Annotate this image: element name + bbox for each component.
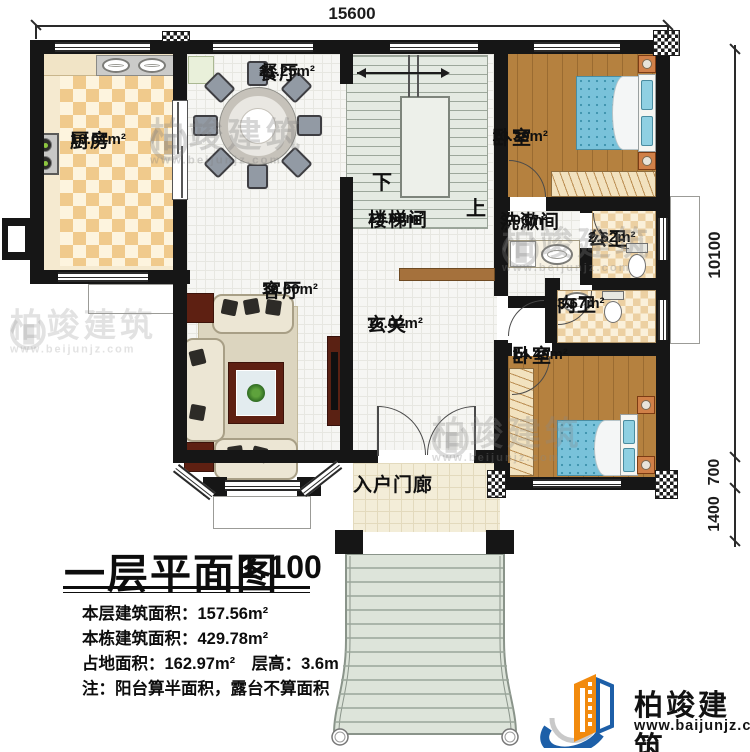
dim-right-depth: 10100 <box>705 225 725 285</box>
door-entry-left-leaf <box>377 406 379 456</box>
washing-machine <box>510 241 536 267</box>
watermark-text: 柏竣建筑 <box>10 309 157 342</box>
dim-right-steps: 1400 <box>706 487 724 541</box>
window-stair-top <box>390 42 478 52</box>
kitchen-exterior-pad <box>88 284 174 314</box>
floor-porch <box>353 463 500 532</box>
kitchen-sliding-door-rail <box>181 146 183 198</box>
porch-pillar-left <box>335 530 363 554</box>
stat-floor-area: 本层建筑面积：157.56m² <box>82 600 268 624</box>
left-flue-inner <box>8 226 25 252</box>
kitchen-sink-bowl <box>102 58 130 73</box>
stair-rear-door-line <box>417 55 419 97</box>
bed1-pillow <box>641 116 653 146</box>
brand-logo-site: www.baijunjz.com <box>634 718 750 734</box>
bed2-nightstand <box>637 396 655 414</box>
stair-up-label: 上 <box>466 192 486 221</box>
kitchen-sink-bowl <box>138 58 166 73</box>
living-side-table <box>184 293 214 323</box>
window-bath-inner-right <box>658 300 668 340</box>
sofa-cushion <box>221 299 239 317</box>
bed1-wardrobe <box>551 171 656 197</box>
sofa-cushion <box>189 404 206 421</box>
dining-table-center <box>240 108 276 144</box>
bed2-pillow <box>623 448 635 472</box>
right-exterior-ledge <box>670 196 700 344</box>
toilet-public-bowl <box>628 254 646 278</box>
wall-bed1-left <box>494 54 508 296</box>
stat-land-area-height: 占地面积：162.97m² 层高：3.6m <box>82 650 339 674</box>
wall-bed2-top-a <box>494 343 512 356</box>
bed1-nightstand <box>638 55 656 73</box>
dim-line-right <box>734 45 736 547</box>
coffee-table-plant <box>247 384 265 402</box>
stair-down-label: 下 <box>372 166 392 195</box>
wall-washroom-bath <box>580 205 592 213</box>
window-kitchen-top <box>55 42 150 52</box>
entry-steps <box>330 554 520 746</box>
stair-arrow-line <box>357 72 445 74</box>
porch-pillar-right <box>486 530 514 554</box>
toilet-inner-tank <box>602 291 624 300</box>
floor-plan-canvas: 柏竣建筑www.beijunjz.com 柏竣建筑www.beijunjz.co… <box>0 0 750 752</box>
washroom-basin <box>541 244 573 265</box>
brand-logo-name: 柏竣建筑 <box>634 682 750 752</box>
dining-chair <box>297 115 322 136</box>
title-underline-thick <box>63 586 310 589</box>
dim-top-width: 15600 <box>312 4 392 24</box>
wall-left <box>30 40 44 284</box>
hatch-porch-right <box>487 470 506 498</box>
wall-porch-door-right <box>474 450 508 463</box>
window-bedroom2-bottom <box>533 479 621 488</box>
bed1-sheet <box>612 76 640 150</box>
wall-innerbath-left <box>545 278 557 343</box>
hatch-bottom-right <box>655 470 678 499</box>
dining-chair <box>193 115 218 136</box>
stair-arrow-right <box>441 68 455 78</box>
dim-line-top <box>35 25 668 27</box>
dim-tail <box>35 25 37 39</box>
kitchen-sliding-door <box>172 100 188 200</box>
bed1-nightstand <box>638 152 656 170</box>
wall-porch-door-left <box>345 450 378 463</box>
sofa-cushion <box>243 298 260 315</box>
dim-tail <box>667 25 669 39</box>
hall-beam <box>399 268 495 281</box>
stair-arrow-left <box>352 68 366 78</box>
watermark-logo-icon <box>10 314 46 350</box>
wall-bed1-bottom-a <box>502 197 510 211</box>
wall-right <box>656 40 670 490</box>
wall-living-bottom <box>173 450 353 463</box>
stair-rear-door-line <box>408 55 410 97</box>
floor-kitchen-checker <box>60 76 173 266</box>
wall-innerbath-top-b <box>592 278 656 290</box>
brand-logo-icon <box>538 666 630 748</box>
window-kitchen-bottom <box>58 272 148 282</box>
bed1-pillow <box>641 80 653 110</box>
title-underline-thin <box>63 592 310 593</box>
toilet-inner-bowl <box>604 301 622 323</box>
stat-building-area: 本栋建筑面积：429.78m² <box>82 625 268 649</box>
wall-washroom-bath-b <box>580 248 592 285</box>
bed2-nightstand <box>637 456 655 474</box>
plan-scale: 1:100 <box>240 549 322 586</box>
watermark-url: www.beijunjz.com <box>10 342 157 354</box>
wall-hall-living <box>340 177 353 450</box>
stat-note: 注：阳台算半面积，露台不算面积 <box>82 675 330 699</box>
window-bedroom1-top <box>534 42 620 52</box>
wall-bed1-bottom-b <box>546 197 656 211</box>
stair-landing <box>400 96 450 198</box>
kitchen-sliding-door-rail <box>177 102 179 154</box>
bed2-sheet <box>594 420 622 476</box>
bay-window-sill <box>213 496 311 529</box>
window-bay-center <box>225 480 300 491</box>
door-entry-right-leaf <box>474 406 476 456</box>
hatch-top-left <box>162 31 190 42</box>
tv-screen <box>331 352 338 410</box>
bed2-pillow <box>623 420 635 444</box>
window-dining-top <box>213 42 313 52</box>
window-bath-public-right <box>658 218 668 260</box>
dining-chair <box>247 164 268 189</box>
